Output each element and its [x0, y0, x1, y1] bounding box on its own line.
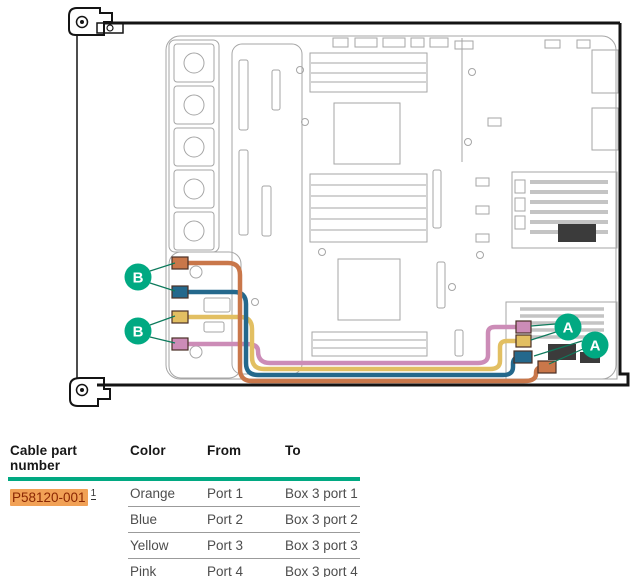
cables: [184, 263, 552, 381]
connector-blue-right: [514, 351, 532, 363]
header-cable-part-number: Cable part number: [8, 441, 128, 477]
from-cell: Port 2: [205, 506, 283, 532]
table-body: P58120-0011 Orange Port 1 Box 3 port 1 B…: [8, 481, 360, 577]
callout-b1-label: B: [133, 270, 144, 287]
color-cell: Orange: [128, 481, 205, 506]
dimm-bank-1: [310, 53, 427, 92]
color-cell: Yellow: [128, 532, 205, 558]
table-row: Pink Port 4 Box 3 port 4: [8, 558, 360, 577]
color-cell: Pink: [128, 558, 205, 577]
connector-blue-left: [172, 286, 188, 298]
to-cell: Box 3 port 1: [283, 481, 360, 506]
table-header-row: Cable part number Color From To: [8, 441, 360, 481]
bottom-mounting-ear: [70, 378, 110, 406]
from-cell: Port 3: [205, 532, 283, 558]
callout-lines: [150, 263, 583, 364]
from-cell: Port 1: [205, 481, 283, 506]
callout-b2-label: B: [133, 324, 144, 341]
part-number-highlight: P58120-001: [10, 489, 88, 506]
dimm-bank-3: [312, 332, 427, 356]
footnote-link[interactable]: 1: [91, 488, 97, 500]
dimm-bank-2: [310, 174, 427, 242]
page: B B A A Cable part number Color From To …: [0, 0, 640, 577]
to-cell: Box 3 port 2: [283, 506, 360, 532]
cpu-socket-2: [338, 259, 400, 320]
connector-pink-right: [516, 321, 531, 333]
empty-cell: [8, 532, 128, 557]
table-row: P58120-0011 Orange Port 1 Box 3 port 1: [8, 481, 360, 506]
callout-a1-label: A: [563, 320, 574, 337]
screw-holes: [252, 67, 484, 306]
server-cabling-diagram: B B A A: [0, 0, 640, 435]
header-from: From: [205, 441, 283, 477]
to-cell: Box 3 port 3: [283, 532, 360, 558]
table-row: Yellow Port 3 Box 3 port 3: [8, 532, 360, 558]
cpu-socket-1: [334, 103, 400, 164]
connector-pink-left: [172, 338, 188, 350]
air-baffle: [232, 44, 302, 374]
cable-table: Cable part number Color From To P58120-0…: [8, 441, 360, 577]
callout-a2-label: A: [590, 338, 601, 355]
connector-orange-right: [538, 361, 556, 373]
header-to: To: [283, 441, 360, 477]
connector-yellow-right: [516, 335, 531, 347]
from-cell: Port 4: [205, 558, 283, 577]
empty-cell: [8, 558, 128, 577]
right-upper-cage: [512, 172, 617, 248]
table-row: Blue Port 2 Box 3 port 2: [8, 506, 360, 532]
connector-yellow-left: [172, 311, 188, 323]
chassis-internals: [166, 36, 618, 379]
chassis-frame: [69, 8, 628, 406]
part-number-cell: P58120-0011: [8, 481, 128, 506]
fan-bank: [169, 40, 219, 252]
empty-cell: [8, 506, 128, 531]
to-cell: Box 3 port 4: [283, 558, 360, 577]
color-cell: Blue: [128, 506, 205, 532]
header-color: Color: [128, 441, 205, 477]
